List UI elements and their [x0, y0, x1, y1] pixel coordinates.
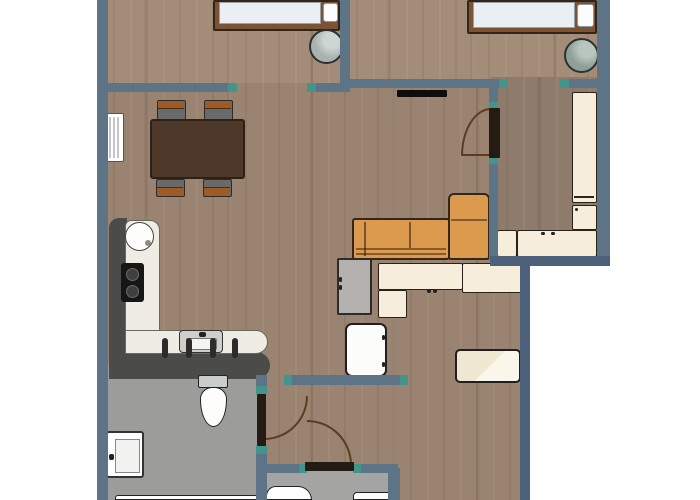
sink-basin [115, 439, 140, 473]
handle [339, 285, 342, 290]
backrest-line [356, 253, 446, 255]
wall [348, 79, 508, 88]
handle [551, 232, 555, 235]
tv [397, 90, 447, 97]
dining-table [150, 119, 245, 179]
backrest-line [356, 248, 446, 250]
wall-cap [256, 446, 267, 454]
desk [517, 230, 597, 257]
wall [490, 256, 610, 266]
wall [284, 375, 408, 385]
cushion-seam [409, 222, 411, 248]
cooktop [121, 263, 144, 302]
handle [427, 289, 431, 293]
dining-chair [157, 100, 186, 121]
wall [97, 83, 237, 92]
chair-backrest [205, 101, 231, 109]
pillow [323, 3, 338, 22]
fixture-partial [266, 486, 312, 500]
chair-backrest [204, 187, 230, 195]
stool-left [309, 29, 344, 64]
chair-backrest [157, 187, 183, 195]
wardrobe [572, 92, 597, 203]
wall-cap [353, 464, 361, 473]
bed-right [467, 0, 597, 34]
bathtub-partial [115, 495, 258, 500]
sideboard [462, 263, 523, 293]
radiator-fin [109, 117, 111, 158]
wall-cap [499, 79, 508, 88]
shelf-seam [574, 196, 594, 198]
pillow [577, 4, 594, 27]
radiator-fin [113, 117, 115, 158]
faucet [109, 454, 114, 460]
wall-cap [228, 83, 237, 92]
wall-cap [400, 375, 408, 385]
floor-plan [0, 0, 700, 500]
rail-post [232, 338, 238, 358]
sofa-chaise [448, 193, 490, 260]
door-leaf [489, 108, 500, 158]
wall-cap [560, 79, 569, 88]
wall [388, 468, 400, 500]
wall-cap [307, 83, 316, 92]
rail-post [162, 338, 168, 358]
handle [433, 289, 437, 293]
wall-cap [284, 375, 292, 385]
door-leaf [305, 462, 354, 471]
dining-chair [204, 100, 233, 121]
door-leaf [257, 394, 266, 446]
handle [575, 208, 578, 211]
handle [339, 277, 342, 282]
wall [520, 262, 530, 500]
wall [256, 446, 267, 500]
hinge [382, 362, 385, 367]
washing-machine [345, 323, 387, 377]
kitchen-round-sink [125, 222, 154, 251]
dining-chair [203, 179, 232, 197]
cabinet [572, 205, 597, 230]
wall [97, 0, 108, 500]
hinge [382, 335, 385, 340]
faucet [199, 332, 206, 337]
cabinet [337, 258, 372, 315]
bathroom-sink [106, 431, 144, 478]
stool-right [564, 38, 599, 73]
armrest-seam [364, 222, 366, 256]
chair-backrest [158, 101, 184, 109]
door-chord [461, 154, 491, 156]
sideboard [378, 263, 463, 290]
burner [126, 285, 139, 298]
sideboard [378, 290, 407, 318]
rail-post [186, 338, 192, 358]
radiator-fin [117, 117, 119, 158]
bed-left [213, 0, 340, 31]
desk-return [497, 230, 517, 257]
wall [597, 0, 610, 265]
sofa [352, 218, 450, 260]
bench [455, 349, 521, 383]
cushion-seam [451, 219, 487, 221]
mattress [219, 2, 321, 24]
faucet [145, 240, 151, 246]
wall-cap [256, 386, 267, 394]
rail-post [210, 338, 216, 358]
mattress [473, 2, 575, 28]
burner [126, 268, 139, 281]
fixture-partial [353, 492, 393, 500]
dining-chair [156, 179, 185, 197]
wall [489, 156, 498, 260]
handle [541, 232, 545, 235]
